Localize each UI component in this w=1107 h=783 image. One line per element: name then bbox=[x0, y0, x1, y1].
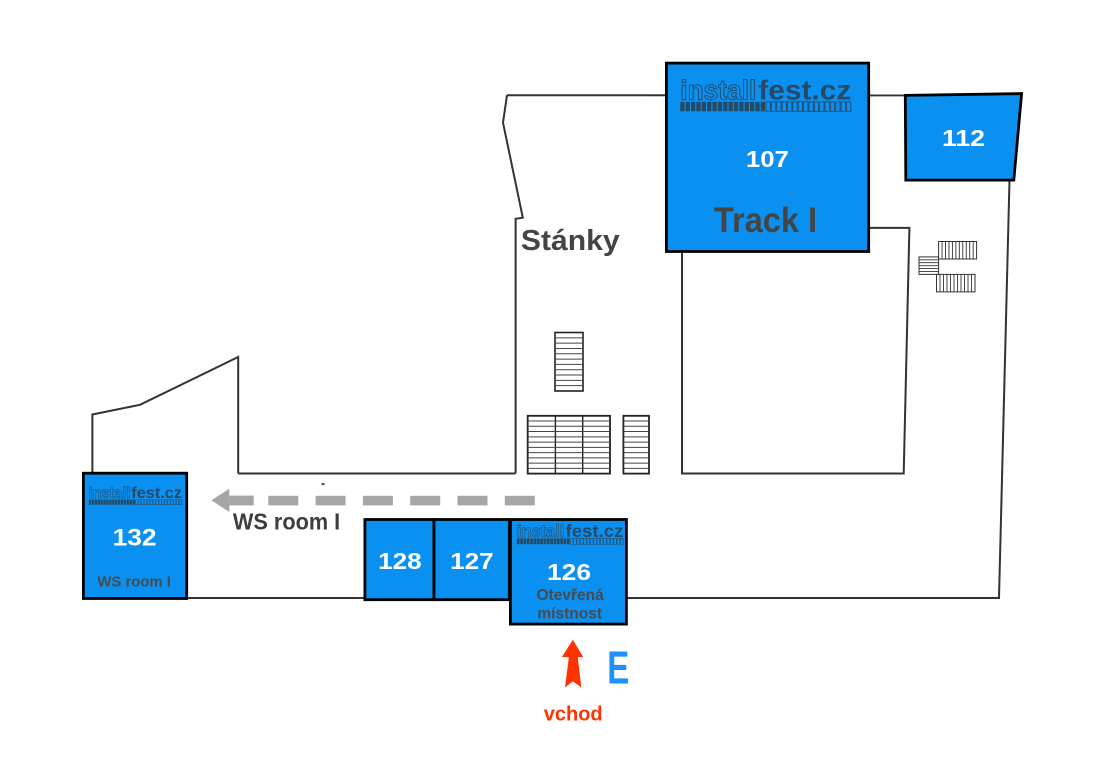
svg-text:WS room I: WS room I bbox=[233, 508, 340, 534]
svg-text:vchod: vchod bbox=[544, 703, 603, 725]
svg-text:132: 132 bbox=[113, 525, 157, 552]
svg-text:128: 128 bbox=[378, 548, 422, 574]
svg-text:Track I: Track I bbox=[714, 201, 817, 240]
svg-text:107: 107 bbox=[746, 146, 789, 172]
svg-text:E: E bbox=[607, 641, 629, 693]
svg-text:127: 127 bbox=[450, 548, 494, 574]
svg-text:Otevřená: Otevřená bbox=[536, 587, 604, 604]
svg-text:Stánky: Stánky bbox=[521, 225, 620, 257]
svg-text:126: 126 bbox=[547, 559, 591, 585]
svg-text:112: 112 bbox=[942, 125, 985, 151]
svg-text:místnost: místnost bbox=[537, 606, 602, 623]
svg-text:WS room I: WS room I bbox=[97, 573, 170, 590]
